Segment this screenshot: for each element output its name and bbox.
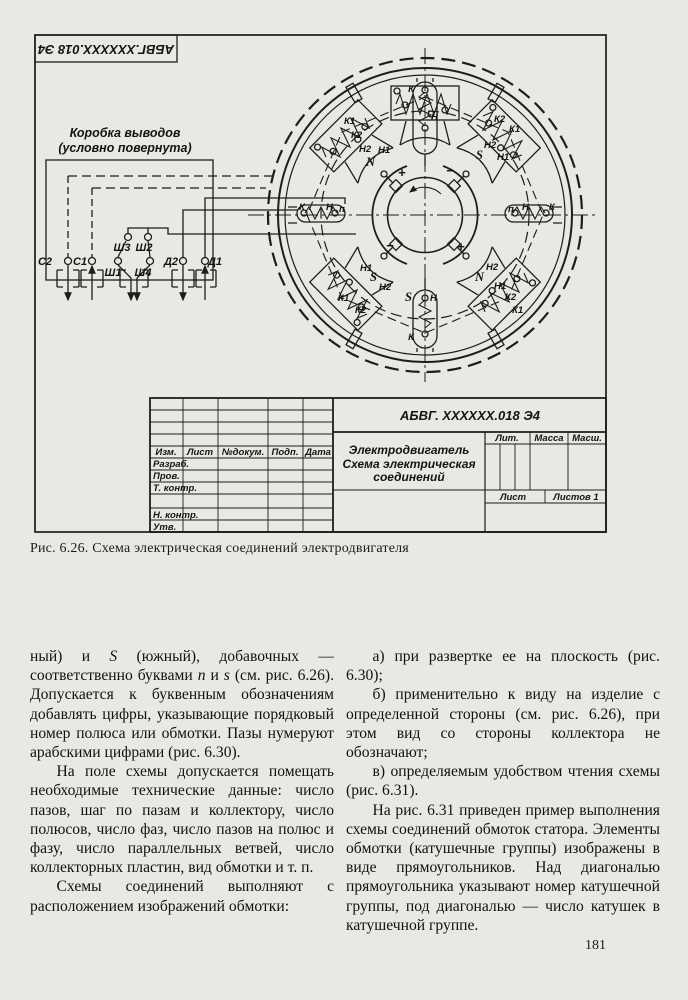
paragraph: а) при развертке ее на плоскость (рис. 6… bbox=[346, 647, 660, 685]
titleblock-row-tkontr: Т. контр. bbox=[153, 483, 197, 494]
figure-6-26: АБВГ.ХХХХХХ.018 Э4 Коробка выводов (усло… bbox=[0, 0, 688, 560]
motor-diagram: + − − + К1 К2 Н2 Н1 N К2 К1 Н2 S Н1 Н1 S… bbox=[248, 48, 598, 382]
brush-sign: − bbox=[386, 238, 394, 253]
winding-label: Н bbox=[430, 293, 438, 304]
page-number: 181 bbox=[585, 938, 606, 954]
terminal-label-d1: Д1 bbox=[207, 256, 222, 268]
winding-label: Н2 bbox=[359, 144, 372, 155]
body-column-left: ный) и S (южный), добавочных — соответст… bbox=[30, 647, 334, 935]
brush-sign: + bbox=[398, 165, 406, 180]
paragraph: На поле схемы допускается помещать необх… bbox=[30, 762, 334, 877]
terminal-label-sh2: Ш2 bbox=[136, 242, 153, 254]
winding-label: К2 bbox=[355, 305, 367, 316]
titleblock-product: Электродвигатель bbox=[349, 443, 470, 457]
terminal-label-c2: С2 bbox=[38, 256, 52, 268]
titleblock-col-list: Лист bbox=[186, 447, 214, 458]
winding-label: К1 bbox=[344, 116, 355, 127]
titleblock-row-prov: Пров. bbox=[153, 471, 180, 482]
winding-label: К1 bbox=[509, 124, 520, 135]
winding-label: Н bbox=[326, 202, 334, 213]
winding-label: Н2 bbox=[484, 140, 497, 151]
terminal-label-sh1: Ш1 bbox=[105, 267, 122, 279]
figure-caption: Рис. 6.26. Схема электрическая соединени… bbox=[30, 541, 630, 557]
titleblock-listov: Листов 1 bbox=[552, 492, 598, 503]
titleblock-doc-type-2: соединений bbox=[373, 470, 445, 484]
titleblock-doc-type-1: Схема электрическая bbox=[342, 457, 475, 471]
winding-label: К2 bbox=[505, 292, 517, 303]
winding-label: Н bbox=[431, 112, 439, 123]
paragraph: в) определяемым удобством чтения схемы (… bbox=[346, 762, 660, 800]
titleblock-row-nkontr: Н. контр. bbox=[153, 510, 198, 521]
winding-label: К bbox=[299, 202, 306, 213]
winding-label: К1 bbox=[338, 293, 349, 304]
winding-label: п bbox=[339, 204, 345, 215]
winding-label: К1 bbox=[512, 305, 523, 316]
titleblock-col-podp: Подп. bbox=[272, 447, 299, 458]
titleblock-col-izm: Изм. bbox=[155, 447, 176, 458]
paragraph: ный) и S (южный), добавочных — соответст… bbox=[30, 647, 334, 762]
book-page: АБВГ.ХХХХХХ.018 Э4 Коробка выводов (усло… bbox=[0, 0, 688, 1000]
title-block: АБВГ. ХХХХХХ.018 Э4 Электродвигатель Схе… bbox=[150, 398, 606, 533]
winding-label: Н2 bbox=[486, 262, 499, 273]
brush-sign: − bbox=[446, 163, 454, 178]
paragraph: Схемы соединений выполняют с расположени… bbox=[30, 877, 334, 915]
body-column-right: а) при развертке ее на плоскость (рис. 6… bbox=[346, 647, 660, 935]
terminal-label-c1: С1 bbox=[73, 256, 87, 268]
brush-sign: + bbox=[457, 239, 465, 254]
terminal-label-sh3: Ш3 bbox=[114, 242, 131, 254]
titleblock-row-razrab: Разраб. bbox=[153, 459, 189, 470]
titleblock-col-dokum: №докум. bbox=[222, 447, 264, 458]
stamp-doc-number: АБВГ.ХХХХХХ.018 Э4 bbox=[37, 42, 175, 57]
titleblock-list: Лист bbox=[499, 492, 527, 503]
body-text: ный) и S (южный), добавочных — соответст… bbox=[30, 647, 660, 935]
pole-polarity: N bbox=[474, 270, 485, 284]
titleblock-row-utv: Утв. bbox=[153, 522, 176, 533]
pole-polarity: S bbox=[370, 270, 377, 284]
terminal-box-label-line1: Коробка выводов bbox=[70, 126, 181, 140]
titleblock-col-data: Дата bbox=[304, 447, 331, 458]
terminal-box-label-line2: (условно повернута) bbox=[58, 141, 191, 155]
titleblock-lit: Лит. bbox=[494, 433, 518, 444]
paragraph: б) применительно к виду на изделие с опр… bbox=[346, 685, 660, 762]
terminal-box: С2 С1 Ш1 Ш4 Д2 Д1 Ш3 Ш2 bbox=[38, 160, 356, 300]
terminal-label-d2: Д2 bbox=[163, 256, 178, 268]
titleblock-massa: Масса bbox=[534, 433, 563, 444]
paragraph: На рис. 6.31 приведен пример выполнения … bbox=[346, 801, 660, 935]
stamp-box: АБВГ.ХХХХХХ.018 Э4 bbox=[35, 35, 177, 62]
winding-label: Н1 bbox=[494, 281, 506, 292]
winding-label: п bbox=[508, 204, 514, 215]
winding-label: Н1 bbox=[497, 152, 509, 163]
winding-label: Н1 bbox=[378, 145, 390, 156]
winding-label: Н bbox=[522, 202, 530, 213]
text-run: и bbox=[205, 667, 223, 684]
pole-polarity: S bbox=[405, 290, 412, 304]
pole-polarity: N bbox=[365, 155, 376, 169]
pole-polarity: S bbox=[476, 148, 483, 162]
titleblock-masshtab: Масш. bbox=[572, 433, 602, 444]
winding-label: Н2 bbox=[379, 282, 392, 293]
winding-label: К2 bbox=[494, 114, 506, 125]
titleblock-doc-number: АБВГ. ХХХХХХ.018 Э4 bbox=[399, 408, 541, 423]
text-run: ный) и bbox=[30, 648, 109, 665]
terminal-box-label: Коробка выводов (условно повернута) bbox=[58, 126, 191, 155]
winding-label: К2 bbox=[351, 130, 363, 141]
